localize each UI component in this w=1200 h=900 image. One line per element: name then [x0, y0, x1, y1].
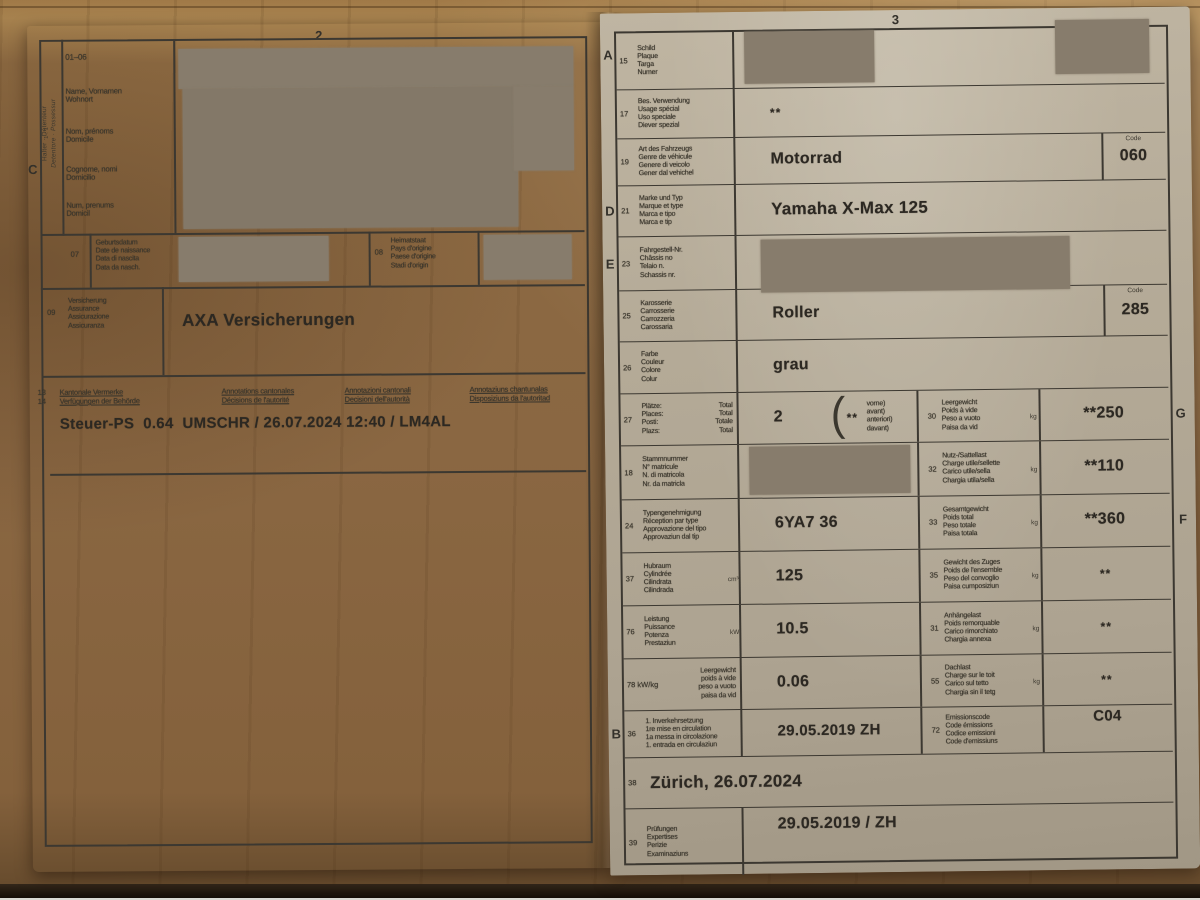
row-17: 17Bes. VerwendungUsage spécialUso specia… [617, 84, 1166, 140]
label-line: davant) [867, 425, 893, 434]
label-line: Stadi d'origin [391, 262, 436, 271]
remarks-header-it: Annotazioni cantonali Decisioni dell'aut… [345, 385, 411, 403]
row-78: 78 kW/kgLeergewichtpoids à videpeso a vu… [624, 653, 1173, 712]
remarks-value: Steuer-PS 0.64 UMSCHR / 26.07.2024 12:40… [60, 413, 451, 433]
divider [916, 391, 919, 442]
divider [920, 656, 923, 707]
value-36: 29.05.2019 ZH [777, 721, 880, 739]
field-number-18: 18 [624, 468, 632, 477]
label-line: Approvaziun dal tip [643, 533, 737, 542]
field-number-72: 72 [931, 726, 939, 735]
field-number-55: 55 [931, 676, 939, 685]
field-number-33: 33 [929, 518, 937, 527]
label-line: Decisioni dell'autorità [345, 394, 411, 403]
margin-letter-f: F [1179, 512, 1187, 527]
label-line: Disposiziuns da l'autoritad [470, 393, 550, 403]
bracket-glyph: ( [830, 388, 845, 441]
value-27: 2 [774, 408, 783, 426]
labels-32: Nutz-/SattellastCharge utile/selletteCar… [942, 452, 1020, 486]
label-line: paisa da vid [674, 692, 736, 701]
value-78: 0.06 [777, 673, 810, 691]
holder-strip-ratio: 1 : 1 [44, 118, 50, 148]
field-number-07: 07 [71, 250, 79, 259]
field-number-17: 17 [620, 109, 628, 118]
unit-30: kg [1017, 413, 1037, 420]
code-value-25: 285 [1103, 301, 1167, 320]
margin-letter-g: G [1175, 405, 1185, 420]
label-line: Chargia utila/sella [942, 476, 1020, 485]
code-value-19: 060 [1101, 147, 1165, 166]
label-line: Wohnort [66, 96, 122, 105]
divider [741, 808, 744, 875]
margin-letter-e: E [606, 256, 615, 271]
redaction-18 [749, 445, 911, 495]
insurance-value: AXA Versicherungen [182, 310, 355, 331]
row-18: 18StammnummerN° matriculeN. di matricola… [621, 440, 1170, 501]
label-line: Chargia sin il tetg [945, 688, 1023, 697]
field-number-19: 19 [621, 157, 629, 166]
label-line: Prestaziun [644, 639, 738, 648]
unit-55: kg [1020, 678, 1040, 685]
label-line: Examinaziuns [647, 850, 741, 859]
label-line: Assicurazione [68, 314, 109, 322]
labels-36: 1. Inverkehrsetzung1re mise en circulati… [645, 716, 739, 750]
divider [733, 89, 736, 137]
field-number-13: 13 [38, 388, 46, 397]
field-number-27: 27 [624, 415, 632, 424]
label-line: Paese d'origine [391, 254, 436, 263]
redaction-15 [1055, 19, 1150, 74]
row-21: D21Marke und TypMarque et typeMarca e ti… [618, 180, 1167, 238]
field-number-76: 76 [626, 627, 634, 636]
field-number-23: 23 [622, 259, 630, 268]
value-32: **110 [1039, 456, 1169, 476]
holder-strip-label-it-rm: Detentore · Possessur [50, 90, 58, 176]
divider [732, 32, 735, 88]
divider [477, 231, 479, 285]
label-line: Nr. da matricla [642, 480, 736, 489]
label-line: Assicuranza [68, 322, 109, 330]
origin-labels: Heimatstaat Pays d'origine Paese d'origi… [391, 237, 436, 270]
divider [736, 393, 739, 444]
row-26: 26FarbeCouleurColoreColurgrau [620, 336, 1169, 395]
label-line: Paisa da vid [942, 423, 1020, 432]
labels-33: GesamtgewichtPoids totalPeso totalePaisa… [943, 505, 1021, 539]
labels-55: DachlastCharge sur le toitCarico sul tet… [945, 664, 1023, 698]
code-label: Code [1101, 135, 1165, 143]
label-line: Total [703, 427, 733, 436]
row-25: 25KarosserieCarrosserieCarrozzeriaCaross… [619, 285, 1168, 343]
value-33: **360 [1040, 510, 1170, 530]
unit-32: kg [1017, 466, 1037, 473]
value-76: 10.5 [776, 620, 809, 638]
redaction-23 [761, 236, 1071, 293]
divider [90, 234, 92, 288]
label-line: Annotazioni cantonali [345, 385, 411, 394]
value-21: Yamaha X-Max 125 [771, 198, 928, 220]
label-line: Chargia annexa [944, 636, 1022, 645]
field-number-15: 15 [619, 56, 627, 65]
label-line: Numer [637, 68, 731, 77]
value-24: 6YA7 36 [775, 514, 838, 533]
row-38: 38Zürich, 26.07.2024 [625, 752, 1174, 810]
field-number-25: 25 [622, 311, 630, 320]
field-number-08: 08 [375, 248, 383, 257]
right-rows: A15SchildPlaqueTargaNumer17Bes. Verwendu… [616, 27, 1174, 862]
row-23: E23Fahrgestell-Nr.Châssis noTelaio n.Sch… [618, 231, 1167, 292]
label-line: Schassis nr. [640, 271, 734, 280]
remarks-header-de: Kantonale Vermerke Verfügungen der Behör… [60, 387, 140, 406]
labels-30: LeergewichtPoids à videPeso a vuotoPaisa… [941, 399, 1019, 433]
divider [740, 710, 743, 756]
label-line: Gener dal vehichel [639, 169, 733, 178]
value-19: Motorrad [770, 150, 842, 169]
document-page-left: 2 C Halter · Détenteur Detentore · Posse… [27, 22, 611, 872]
divider [740, 658, 743, 709]
label-line: Marca e tip [639, 218, 733, 227]
label-line: anteriori) [867, 416, 893, 425]
label-line: Diever spezial [638, 121, 732, 130]
label-line: Code d'emissiuns [946, 738, 1024, 747]
divider [733, 138, 736, 184]
labels-26: FarbeCouleurColoreColur [641, 350, 735, 384]
value-37: 125 [776, 567, 804, 585]
margin-letter-a: A [603, 47, 613, 62]
value-30: **250 [1039, 403, 1169, 423]
redaction-holder-top [178, 46, 573, 89]
label-line: 1. entrada en circulaziun [646, 741, 740, 750]
label-line: Domicilio [66, 174, 117, 183]
divider [368, 232, 370, 286]
labels-total-27: TotalTotalTotaleTotal [703, 402, 733, 435]
row-27: 27Plätze:Places:Posti:Plazs:TotalTotalTo… [620, 388, 1169, 447]
field-number-38: 38 [628, 778, 636, 787]
value-25: Roller [772, 304, 819, 323]
margin-letter-d: D [605, 203, 615, 218]
labels-78: Leergewichtpoids à videpeso a vuotopaisa… [674, 667, 736, 701]
label-line: Décisions de l'autorité [222, 395, 294, 405]
divider [735, 290, 738, 340]
value-55: ** [1042, 671, 1172, 687]
label-line: Domicile [66, 136, 113, 145]
field-range-01-06: 01–06 [65, 54, 86, 62]
divider [734, 236, 737, 289]
value-31: ** [1041, 619, 1171, 635]
redaction-origin [484, 234, 572, 280]
remarks-header-fr: Annotations cantonales Décisions de l'au… [222, 386, 295, 405]
label-line: Paisa cumposiziun [944, 583, 1022, 592]
labels-31: AnhängelastPoids remorquableCarico rimor… [944, 611, 1022, 645]
field-number-36: 36 [628, 729, 636, 738]
labels-23: Fahrgestell-Nr.Châssis noTelaio n.Schass… [640, 246, 734, 280]
labels-17: Bes. VerwendungUsage spécialUso speciale… [638, 97, 732, 131]
divider [918, 497, 921, 549]
field-number-14: 14 [38, 397, 46, 406]
value-17: ** [770, 105, 782, 119]
divider [737, 445, 740, 498]
row-36: B361. Inverkehrsetzung1re mise en circul… [624, 705, 1173, 759]
divider [736, 341, 739, 392]
field-number-78: 78 kW/kg [627, 679, 673, 689]
row-19: 19Art des FahrzeugsGenre de véhiculeGene… [617, 133, 1166, 187]
label-line: Totale [703, 418, 733, 427]
holder-label-fr: Nom, prénoms Domicile [66, 127, 114, 144]
field-number-26: 26 [623, 363, 631, 372]
labels-21: Marke und TypMarque et typeMarca e tipoM… [639, 194, 733, 228]
divider [919, 603, 922, 655]
labels-72: EmissionscodeCode émissionsCodice emissi… [945, 713, 1023, 747]
label-line: Cilindrada [644, 586, 738, 595]
holder-label-de: Name, Vornamen Wohnort [65, 87, 121, 104]
bracket-lines: vorne)avant)anteriori)davant) [867, 400, 893, 433]
labels-39: PrüfungenExpertisesPerizieExaminaziuns [647, 825, 741, 859]
label-line: Domicil [66, 210, 113, 219]
label-line: Verfügungen der Behörde [60, 396, 140, 406]
value-35: ** [1041, 566, 1171, 582]
holder-label-rm: Num, prenums Domicil [66, 201, 114, 218]
divider [920, 708, 923, 754]
field-number-09: 09 [47, 308, 55, 317]
document-page-right: 3 A15SchildPlaqueTargaNumer17Bes. Verwen… [600, 6, 1200, 875]
labels-25: KarosserieCarrosserieCarrozzeriaCarossar… [640, 299, 734, 333]
field-number-35: 35 [930, 571, 938, 580]
divider [917, 443, 920, 496]
value-39: 29.05.2019 / ZH [778, 814, 897, 833]
code-label: Code [1103, 287, 1167, 295]
row-39: 39PrüfungenExpertisesPerizieExaminaziuns… [625, 803, 1174, 877]
unit-33: kg [1018, 519, 1038, 526]
value-38: Zürich, 26.07.2024 [650, 771, 802, 793]
bracket-stars: ** [847, 410, 859, 424]
margin-letter-c: C [28, 162, 37, 177]
label-line: Data da nasch. [96, 264, 151, 273]
value-26: grau [773, 356, 809, 374]
redaction-15 [744, 30, 875, 84]
row-37: 37HubraumCylindréeCilindrataCilindradacm… [622, 547, 1171, 607]
divider [738, 499, 741, 551]
field-number-32: 32 [928, 464, 936, 473]
field-number-31: 31 [930, 624, 938, 633]
divider [734, 185, 737, 235]
margin-letter-b: B [611, 726, 621, 741]
label-line: peso a vuoto [674, 683, 736, 692]
row-15: A15SchildPlaqueTargaNumer [616, 27, 1165, 91]
label-line: Paisa totala [943, 530, 1021, 539]
row-24: 24TypengenehmigungRéception par typeAppr… [622, 494, 1171, 554]
page-number-right: 3 [892, 12, 899, 27]
holder-label-it: Cognome, nomi Domicilio [66, 165, 117, 182]
label-line: Colur [641, 375, 735, 384]
unit-35: kg [1019, 572, 1039, 579]
labels-24: TypengenehmigungRéception par typeApprov… [643, 508, 737, 542]
unit-37: cm³ [715, 576, 739, 583]
labels-19: Art des FahrzeugsGenre de véhiculeGenere… [638, 145, 732, 179]
field-number-24: 24 [625, 521, 633, 530]
redaction-birthdate [179, 236, 329, 282]
insurance-labels: Versicherung Assurance Assicurazione Ass… [68, 297, 109, 330]
field-number-39: 39 [629, 838, 637, 847]
value-72: C04 [1042, 707, 1172, 726]
field-number-37: 37 [626, 574, 634, 583]
unit-76: kW [715, 629, 739, 636]
labels-35: Gewicht des ZugesPoids de l'ensemblePeso… [943, 558, 1021, 592]
field-number-21: 21 [621, 206, 629, 215]
divider [918, 550, 921, 602]
redaction-holder-main [182, 87, 518, 229]
row-76: 76LeistungPuissancePotenzaPrestaziunkW10… [623, 600, 1172, 660]
table-edge-shadow [0, 884, 1200, 898]
divider [738, 552, 741, 604]
remarks-header-rm: Annotaziuns chantunalas Disposiziuns da … [470, 384, 550, 403]
labels-15: SchildPlaqueTargaNumer [637, 44, 731, 78]
birthdate-labels: Geburtsdatum Date de naissance Data di n… [96, 239, 151, 272]
label-line: Carossaria [641, 323, 735, 332]
unit-31: kg [1019, 625, 1039, 632]
divider [739, 605, 742, 657]
redaction-holder-right [513, 86, 574, 170]
field-number-30: 30 [928, 411, 936, 420]
labels-18: StammnummerN° matriculeN. di matricolaNr… [642, 455, 736, 489]
